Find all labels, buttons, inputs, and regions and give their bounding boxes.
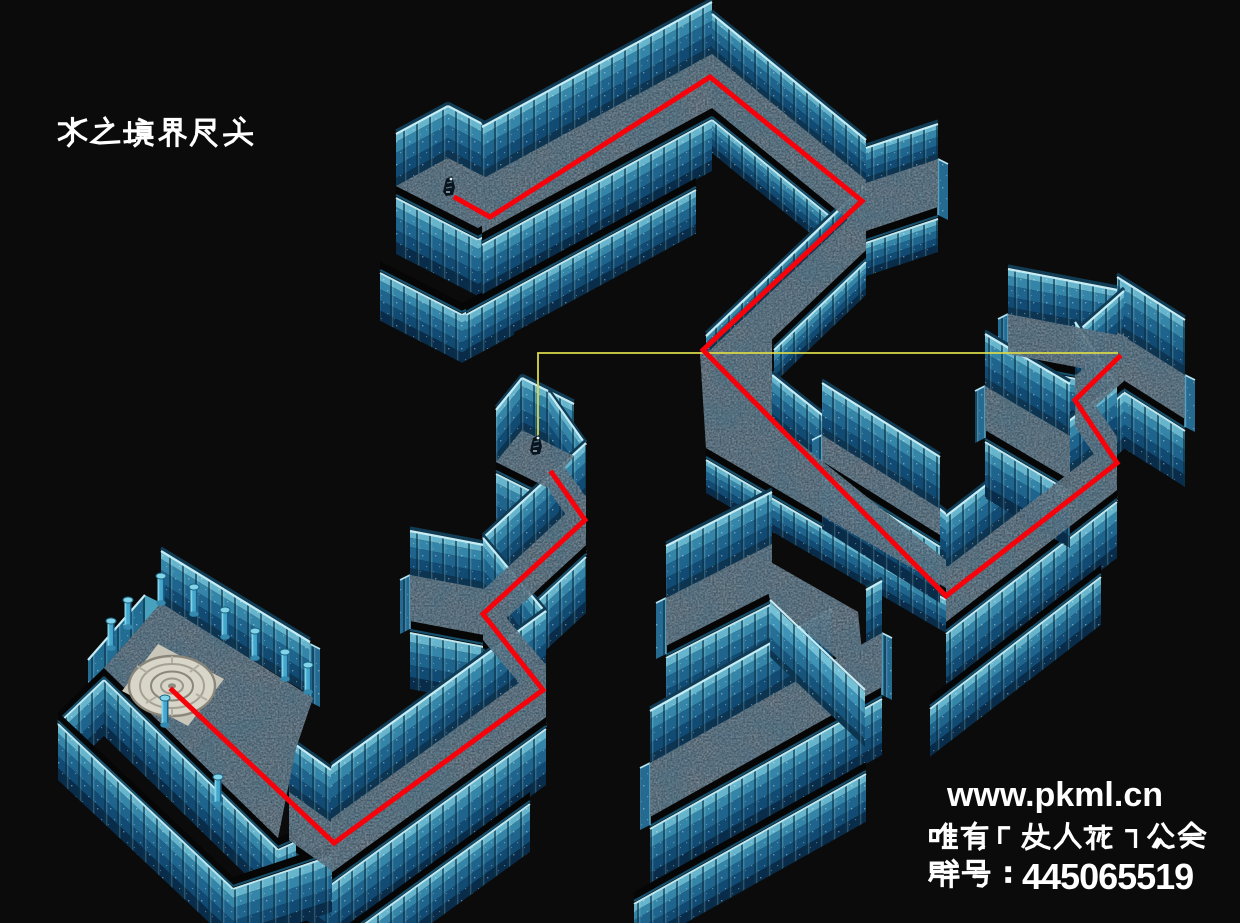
- svg-text:www.pkml.cn: www.pkml.cn: [946, 776, 1163, 814]
- svg-text:445065519: 445065519: [1022, 856, 1193, 897]
